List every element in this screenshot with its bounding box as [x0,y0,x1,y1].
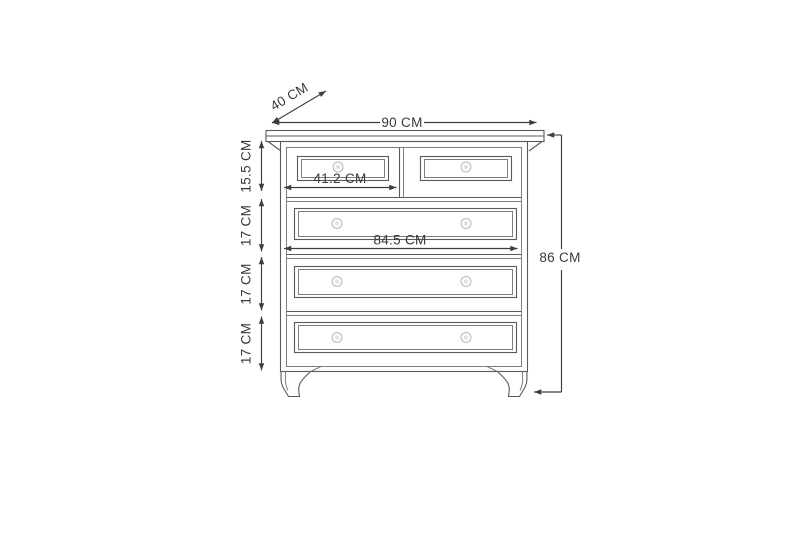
drawer-large-2 [295,267,517,298]
top-row-height-label: 15.5 CM [239,139,254,192]
dresser-drawing [266,131,544,397]
drawer-panel-inner [299,326,513,350]
dimension-height: 86 CM [534,135,581,392]
right-leg-detail-line [520,372,523,391]
knob-center-icon [335,280,339,284]
dimension-large-drawer-width: 84.5 CM [284,233,518,249]
depth-dimension-label: 40 CM [268,80,311,114]
left-leg-back-corner-line [311,367,322,372]
right-leg-back-corner-line [487,367,498,372]
dimension-drawing: 40 CM 90 CM 86 CM 15.5 CM [0,0,800,533]
dimension-small-drawer-width: 41.2 CM [284,171,397,188]
dimension-top-row-height: 15.5 CM [239,139,262,192]
drawer-panel-inner [299,270,513,295]
knob-center-icon [335,222,339,226]
third-row-height-label: 17 CM [239,263,254,304]
small-drawer-width-label: 41.2 CM [313,171,366,186]
knob-center-icon [464,336,468,340]
fourth-row-height-label: 17 CM [239,323,254,364]
dimension-third-row-height: 17 CM [239,257,262,311]
top-board-left-bevel [268,142,281,152]
knob-center-icon [464,280,468,284]
knob-center-icon [336,165,340,169]
height-dimension-label: 86 CM [539,250,580,265]
dimension-fourth-row-height: 17 CM [239,317,262,371]
knob-center-icon [335,336,339,340]
knob-center-icon [464,165,468,169]
top-board-right-bevel [529,142,542,152]
drawer-large-3 [295,323,517,353]
drawer-panel-outer [295,267,517,298]
second-row-height-label: 17 CM [239,205,254,246]
large-drawer-width-label: 84.5 CM [373,233,426,248]
dimension-second-row-height: 17 CM [239,199,262,252]
left-leg-detail-line [285,372,288,391]
knob-center-icon [464,222,468,226]
drawer-panel-outer [295,323,517,353]
dimension-width: 90 CM [272,115,537,130]
drawer-small-right [421,157,512,181]
dimension-annotations: 40 CM 90 CM 86 CM 15.5 CM [239,80,581,392]
diagram-canvas: 40 CM 90 CM 86 CM 15.5 CM [0,0,800,533]
dimension-depth: 40 CM [268,80,326,123]
width-dimension-label: 90 CM [381,115,422,130]
